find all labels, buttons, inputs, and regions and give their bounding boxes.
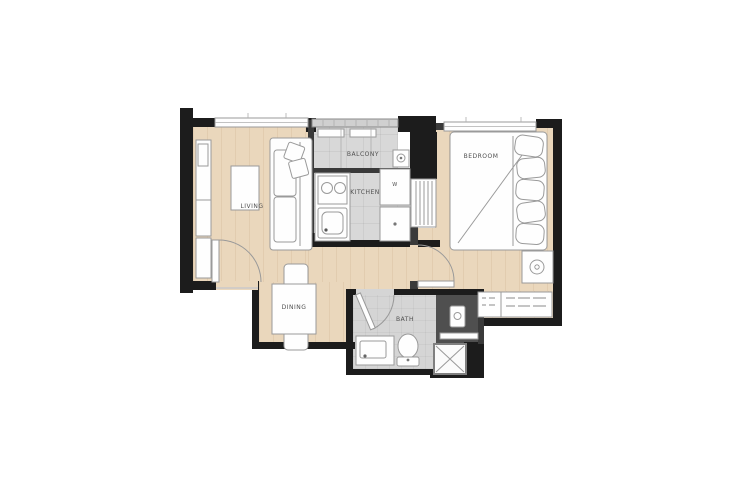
plan-linework — [0, 0, 750, 500]
nightstand — [522, 251, 553, 283]
water-heater-balcony — [393, 150, 409, 167]
washer — [380, 207, 410, 241]
utility-fixtures — [440, 306, 478, 339]
kitchen-counter — [315, 173, 350, 241]
balcony-planters — [318, 128, 376, 168]
bedroom-label: BEDROOM — [455, 153, 507, 160]
bath-label: BATH — [381, 316, 429, 323]
balcony-railing — [312, 119, 398, 127]
throw-pillow — [288, 158, 309, 179]
bath-door — [356, 289, 394, 330]
entrance-door — [212, 240, 261, 290]
pillows — [514, 134, 547, 245]
wardrobe — [411, 179, 436, 227]
bed — [450, 132, 547, 250]
kitchen-label: KITCHEN — [339, 189, 391, 196]
dining-label: DINING — [270, 304, 318, 311]
balcony-label: BALCONY — [337, 151, 389, 158]
door-leaf — [356, 293, 375, 330]
living-label: LIVING — [226, 203, 278, 210]
door-leaf — [418, 281, 454, 287]
water-heater — [450, 306, 465, 327]
tv-console — [196, 140, 211, 278]
shaft-x — [434, 344, 466, 374]
bath-vanity — [356, 336, 394, 365]
bedroom-door — [410, 245, 454, 287]
toilet — [397, 334, 419, 366]
door-leaf — [212, 240, 219, 282]
floor-plan: LIVING BALCONY KITCHEN BEDROOM DINING BA… — [0, 0, 750, 500]
utility-shelf — [440, 333, 478, 339]
sofa — [270, 138, 312, 250]
shaft — [410, 132, 437, 179]
dresser — [478, 292, 552, 317]
living-window — [215, 113, 308, 127]
washer-label: W — [387, 182, 403, 188]
bedroom-window — [444, 117, 536, 131]
